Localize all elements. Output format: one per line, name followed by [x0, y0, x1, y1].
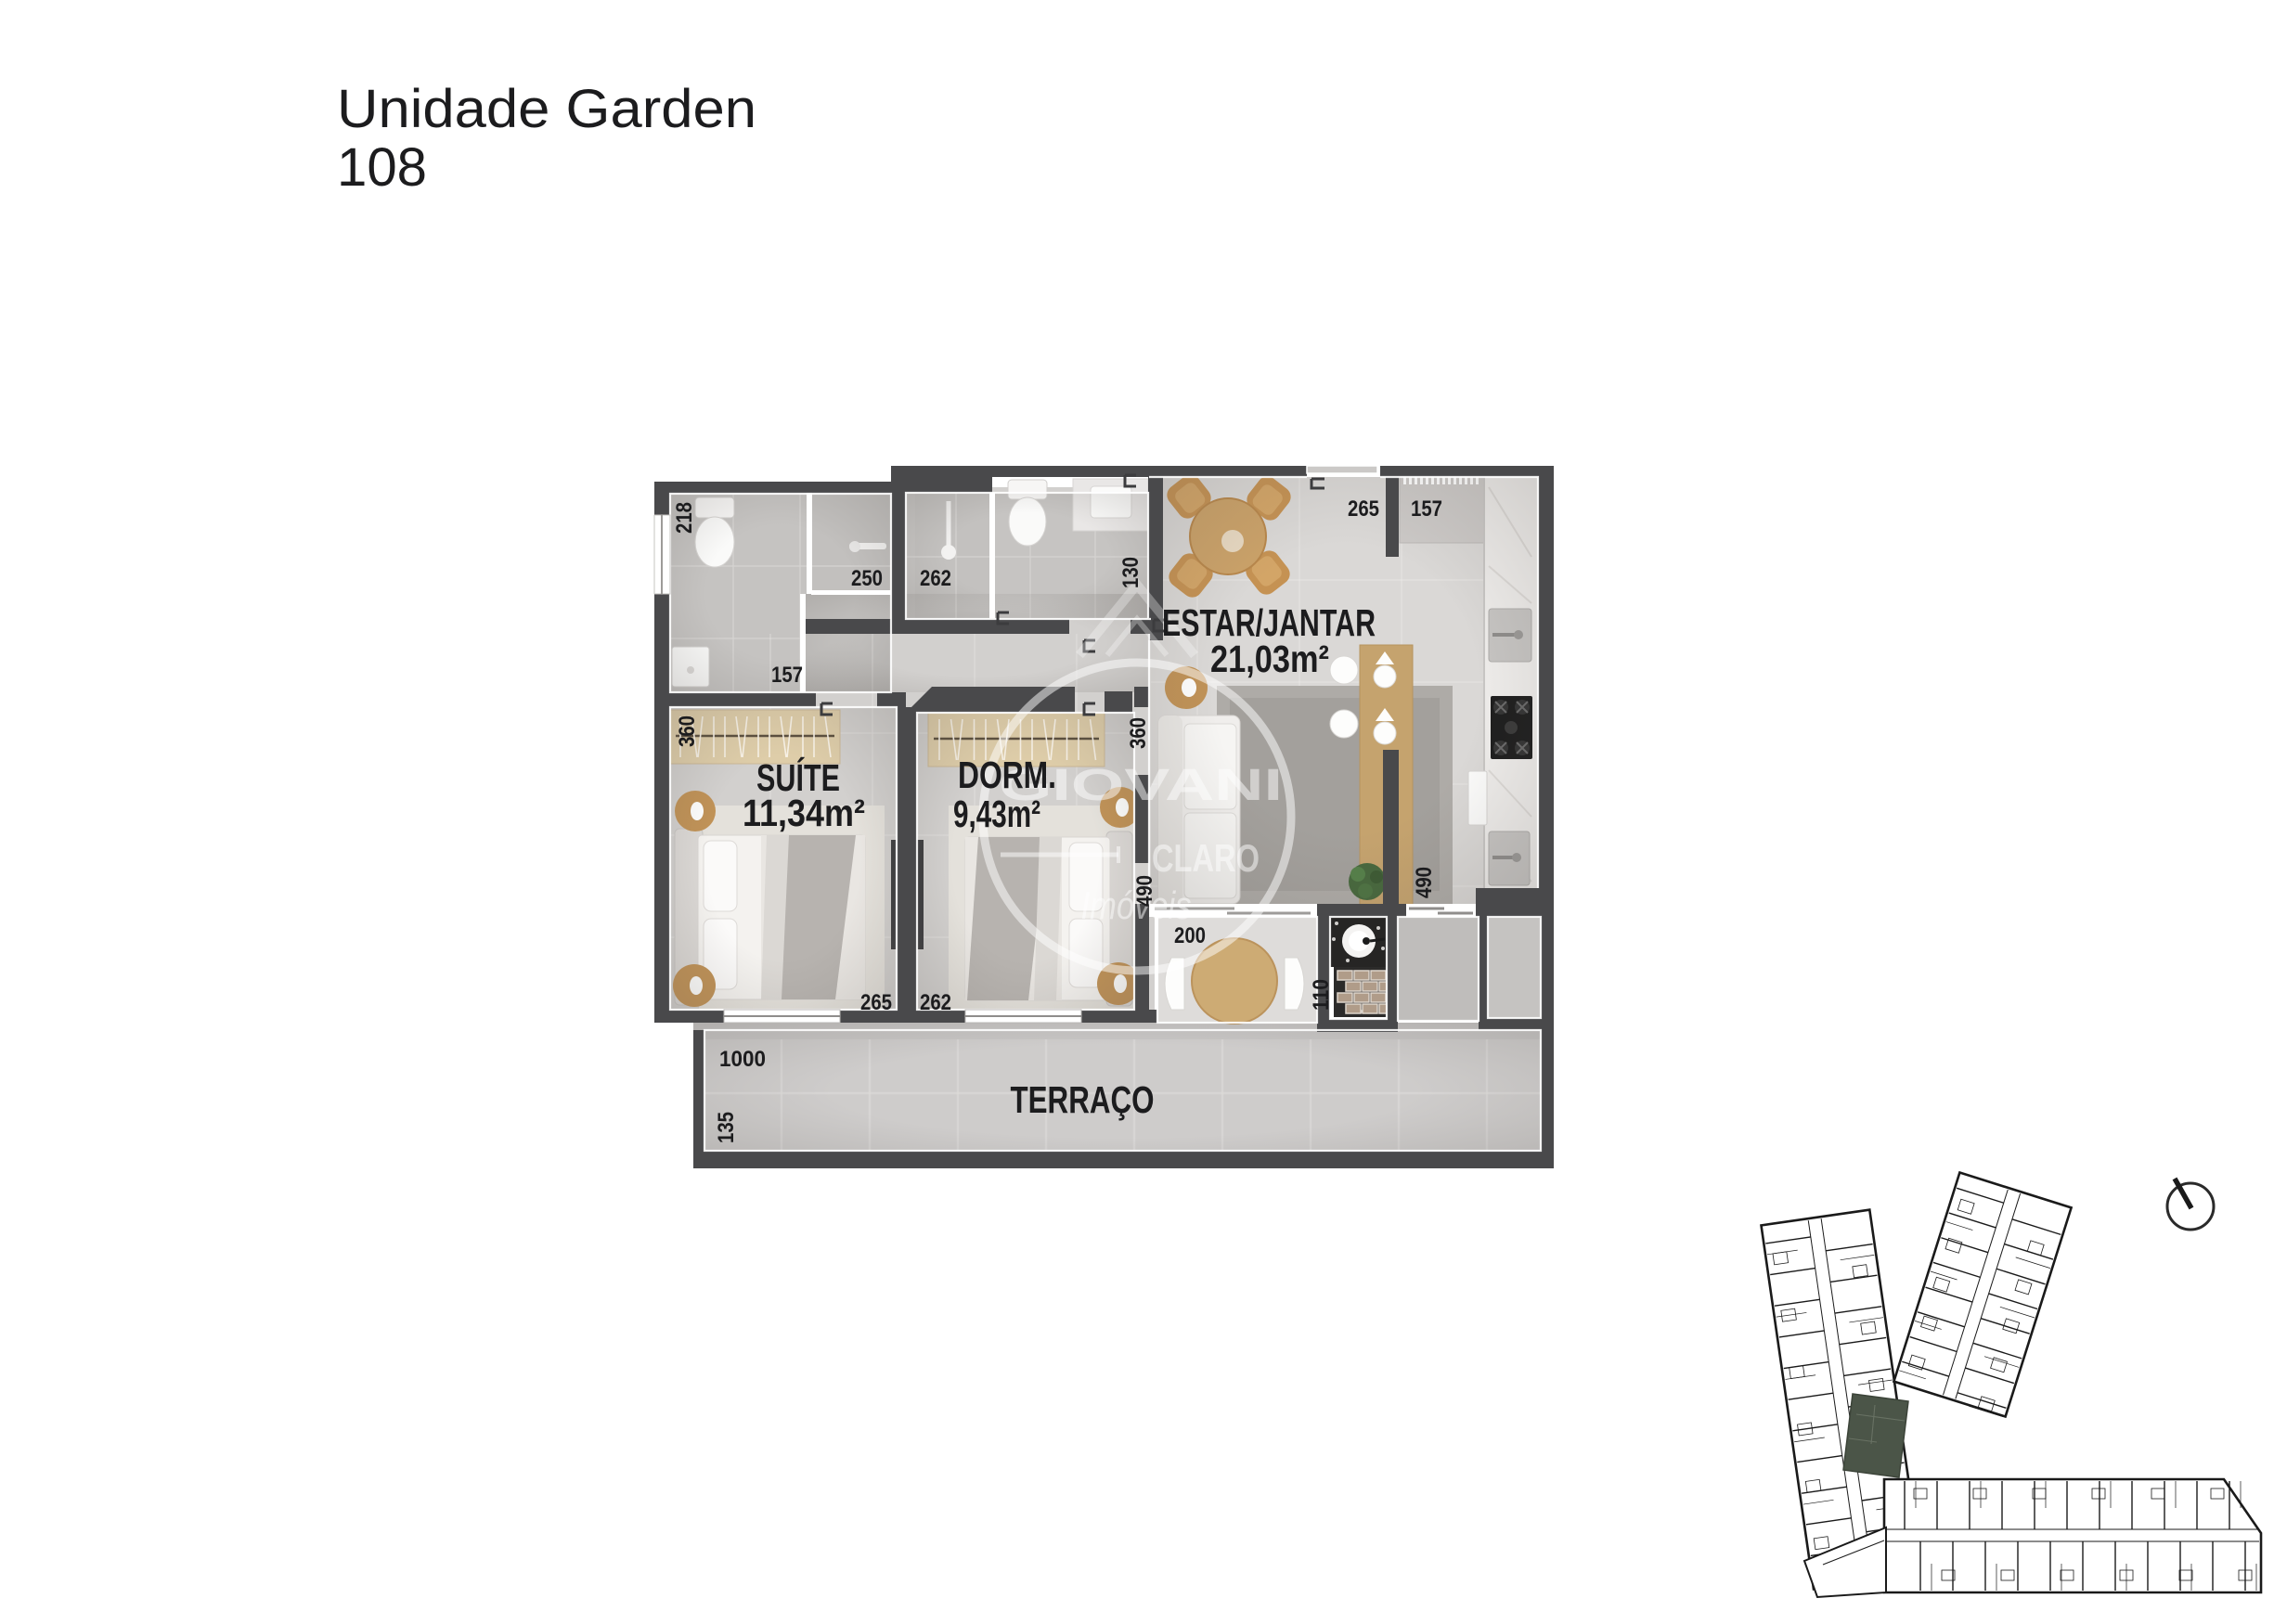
svg-text:21,03m²: 21,03m²	[1210, 638, 1329, 680]
svg-text:262: 262	[920, 566, 951, 591]
svg-text:265: 265	[1348, 496, 1379, 522]
svg-text:490: 490	[1132, 875, 1157, 907]
svg-text:TERRAÇO: TERRAÇO	[1011, 1078, 1155, 1121]
svg-text:157: 157	[771, 663, 803, 688]
svg-text:DORM.: DORM.	[958, 754, 1056, 796]
svg-text:250: 250	[851, 566, 883, 591]
svg-text:135: 135	[714, 1112, 739, 1143]
svg-text:265: 265	[860, 990, 892, 1015]
svg-text:200: 200	[1174, 923, 1206, 948]
svg-text:108: 108	[337, 137, 427, 198]
svg-text:Unidade Garden: Unidade Garden	[337, 79, 756, 139]
svg-text:1000: 1000	[719, 1047, 766, 1072]
svg-text:360: 360	[1126, 717, 1151, 749]
svg-text:110: 110	[1309, 979, 1334, 1011]
svg-text:157: 157	[1411, 496, 1442, 522]
svg-text:262: 262	[920, 990, 951, 1015]
svg-text:130: 130	[1118, 557, 1143, 588]
svg-text:CLARO: CLARO	[1152, 836, 1260, 880]
svg-text:490: 490	[1412, 867, 1437, 898]
svg-text:360: 360	[675, 715, 700, 747]
svg-text:218: 218	[672, 502, 697, 534]
svg-text:9,43m²: 9,43m²	[953, 793, 1040, 835]
svg-text:11,34m²: 11,34m²	[743, 792, 865, 834]
